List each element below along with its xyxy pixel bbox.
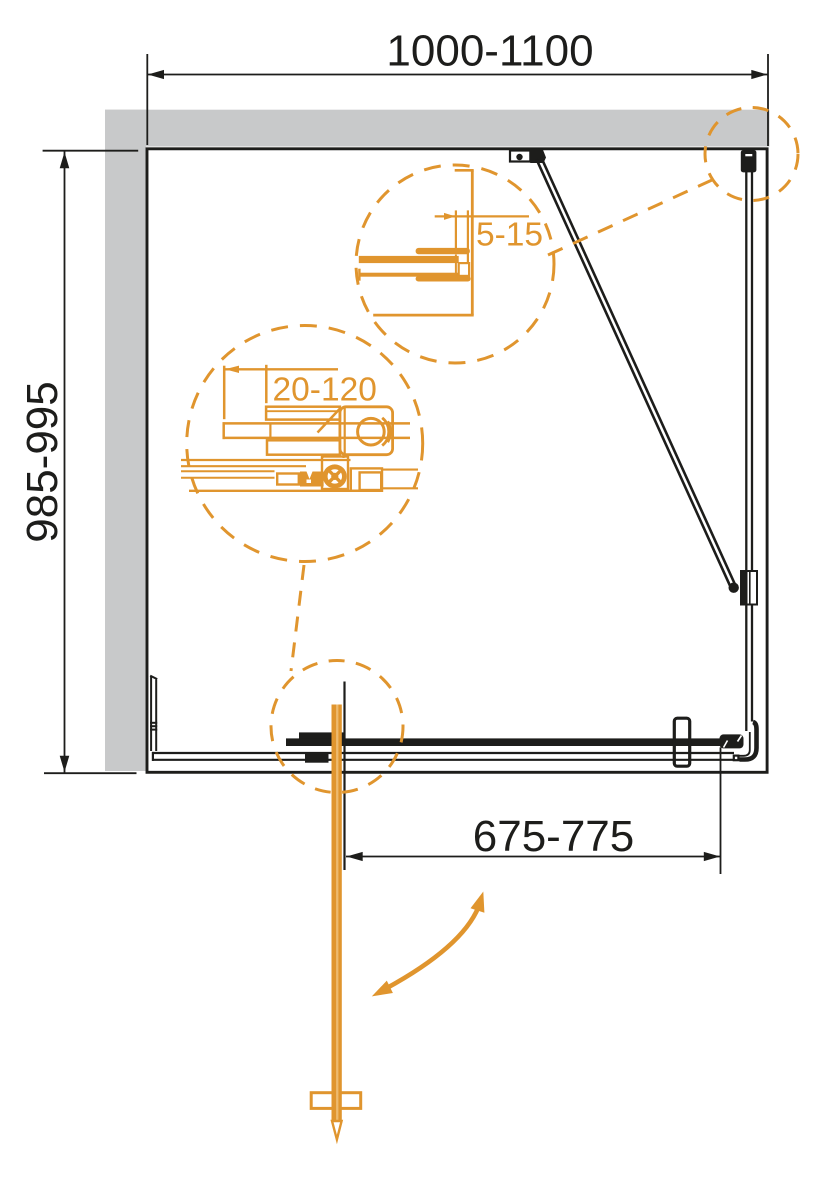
svg-text:5-15: 5-15 xyxy=(476,217,543,254)
svg-text:1000-1100: 1000-1100 xyxy=(386,27,593,76)
svg-text:20-120: 20-120 xyxy=(273,372,377,409)
svg-text:675-775: 675-775 xyxy=(473,812,634,861)
svg-text:985-995: 985-995 xyxy=(18,381,67,542)
